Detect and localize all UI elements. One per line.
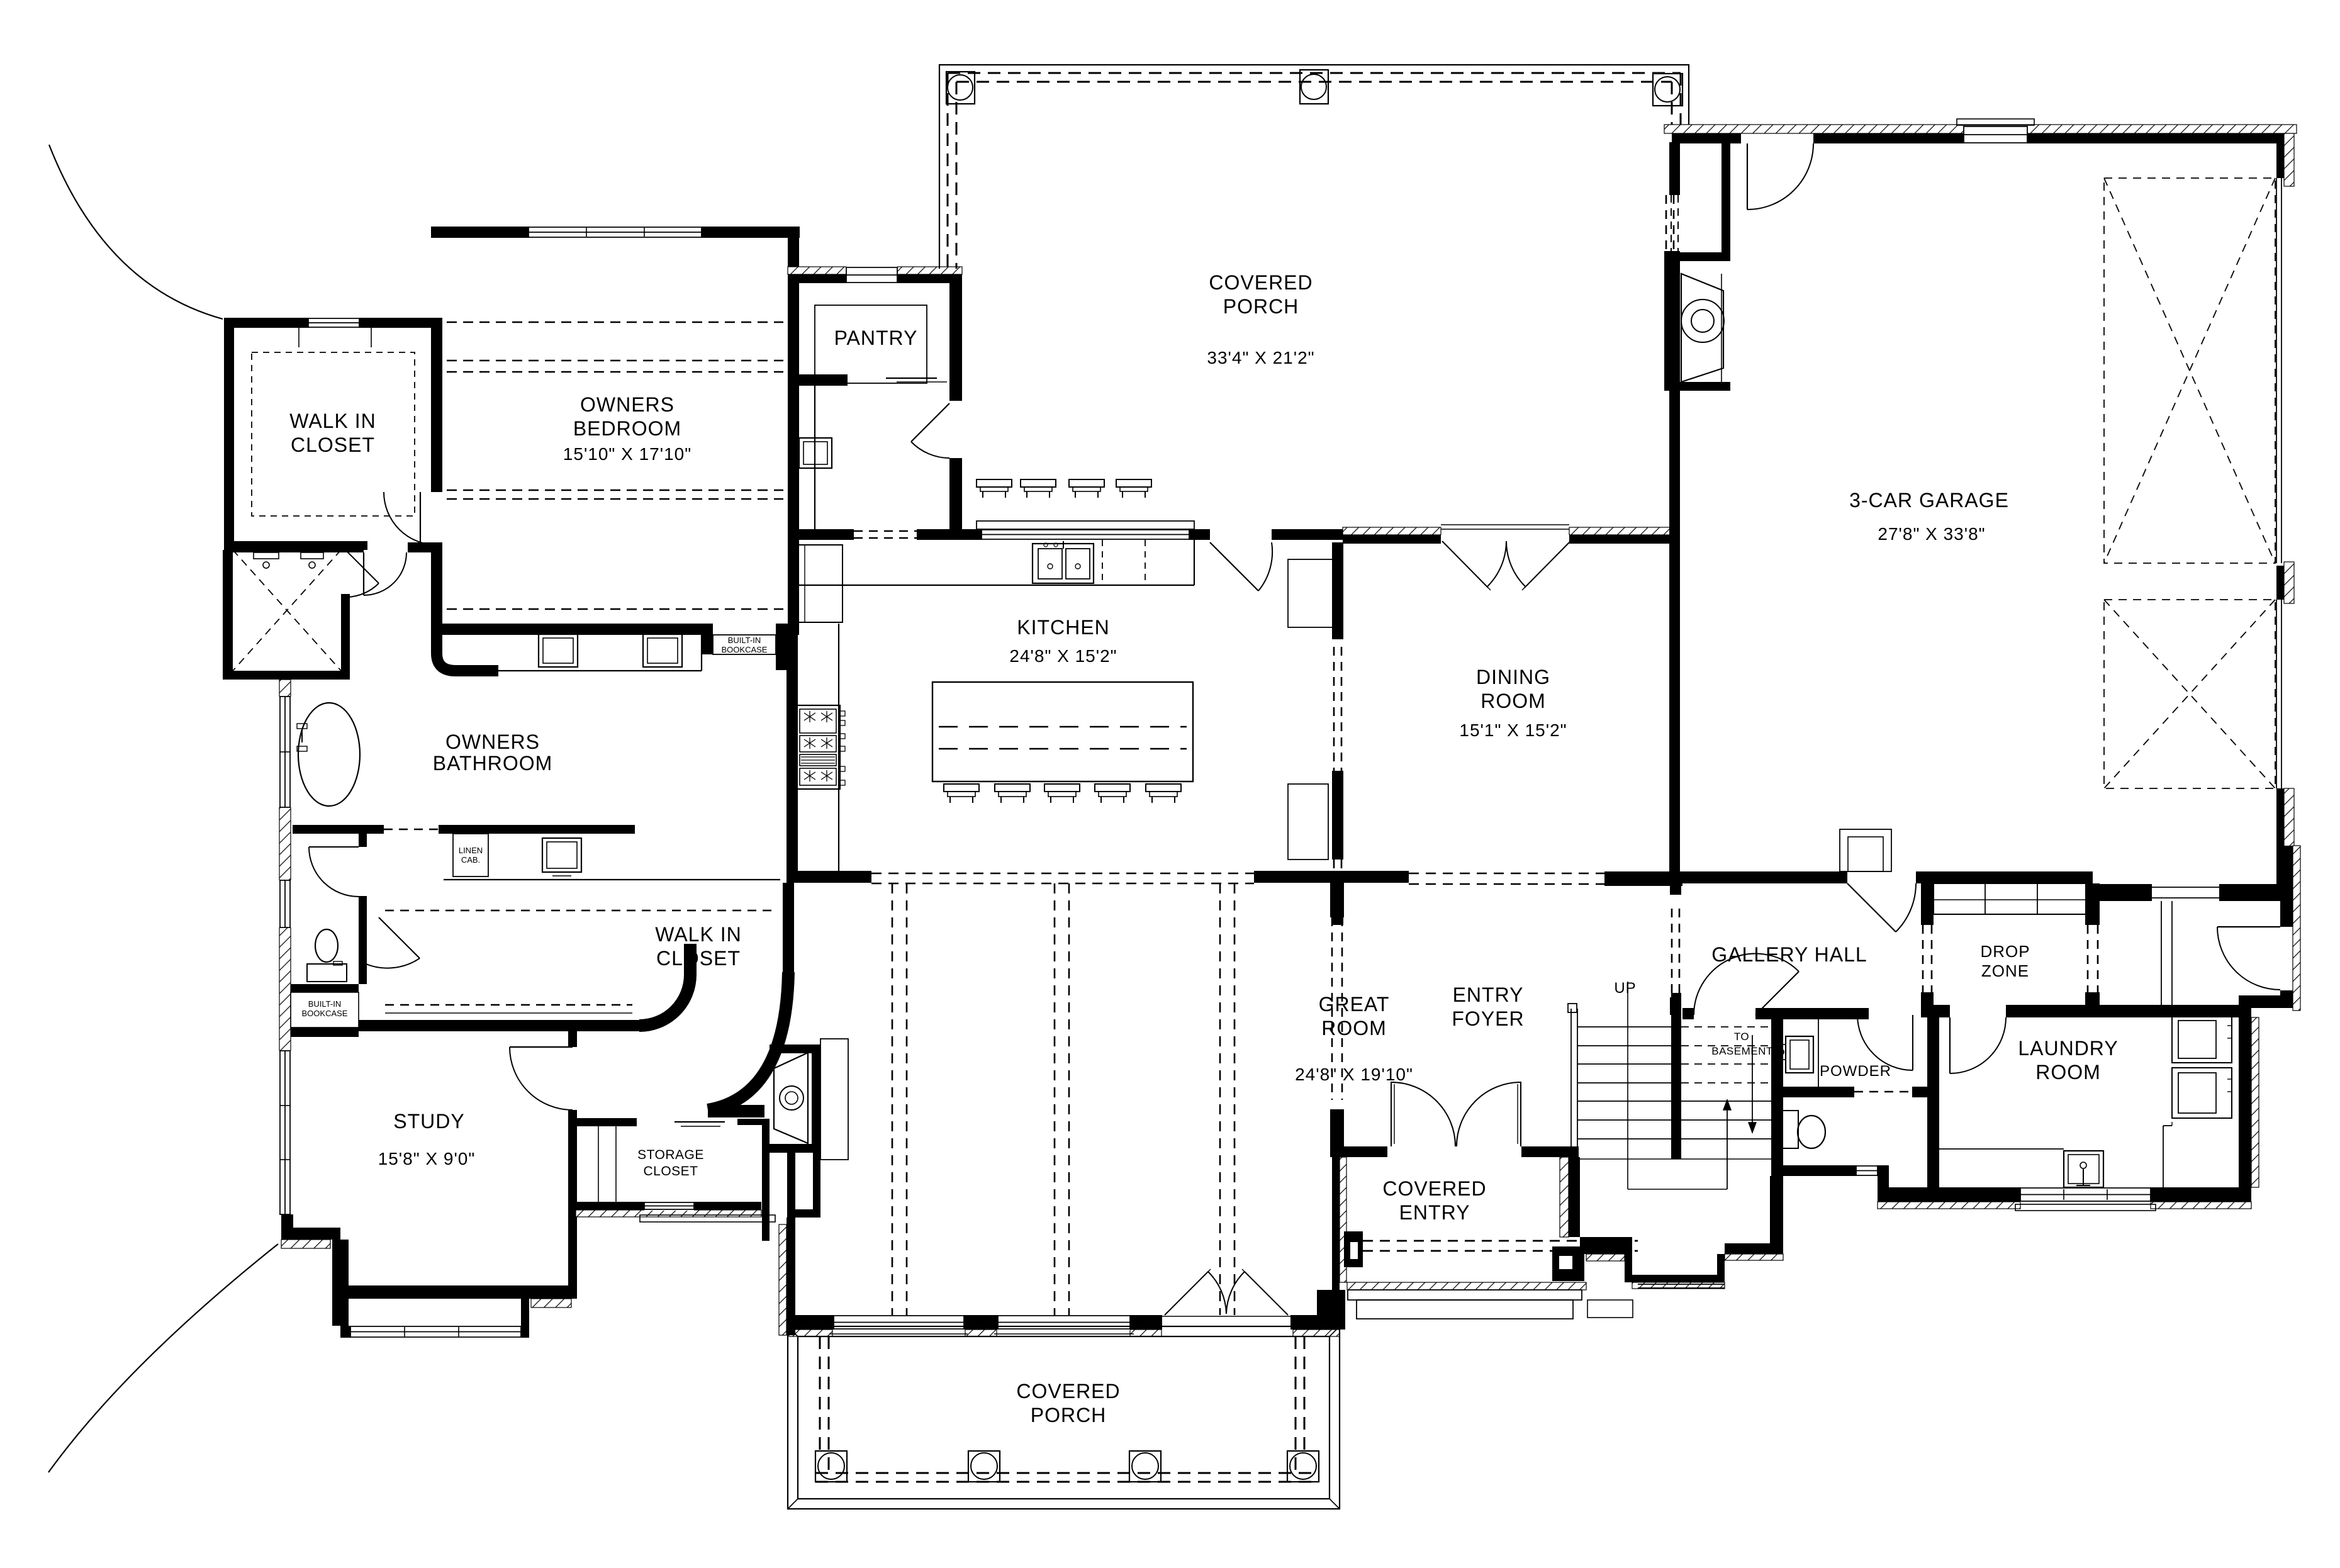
svg-text:CLOSET: CLOSET bbox=[291, 434, 375, 456]
svg-text:BEDROOM: BEDROOM bbox=[573, 417, 681, 440]
svg-text:15'1" X 15'2": 15'1" X 15'2" bbox=[1459, 720, 1567, 740]
svg-text:ENTRY: ENTRY bbox=[1399, 1201, 1470, 1224]
svg-text:LAUNDRY: LAUNDRY bbox=[2018, 1037, 2118, 1060]
svg-text:GALLERY HALL: GALLERY HALL bbox=[1711, 943, 1867, 966]
svg-text:ROOM: ROOM bbox=[1481, 690, 1546, 712]
svg-text:BASEMENT: BASEMENT bbox=[1711, 1045, 1773, 1057]
svg-text:PORCH: PORCH bbox=[1223, 295, 1299, 318]
svg-text:PORCH: PORCH bbox=[1031, 1404, 1107, 1426]
svg-text:ENTRY: ENTRY bbox=[1453, 983, 1524, 1006]
svg-text:BOOKCASE: BOOKCASE bbox=[302, 1009, 348, 1018]
svg-text:24'8" X 19'10": 24'8" X 19'10" bbox=[1295, 1065, 1413, 1084]
svg-text:BUILT-IN: BUILT-IN bbox=[308, 999, 342, 1009]
svg-text:COVERED: COVERED bbox=[1209, 271, 1313, 294]
svg-text:ROOM: ROOM bbox=[1321, 1017, 1387, 1039]
svg-text:ZONE: ZONE bbox=[1981, 961, 2029, 980]
svg-text:LINEN: LINEN bbox=[459, 846, 483, 855]
svg-text:GREAT: GREAT bbox=[1319, 993, 1390, 1016]
svg-text:UP: UP bbox=[1614, 980, 1636, 997]
svg-text:3-CAR GARAGE: 3-CAR GARAGE bbox=[1849, 489, 2009, 512]
svg-text:BUILT-IN: BUILT-IN bbox=[728, 636, 761, 645]
svg-text:POWDER: POWDER bbox=[1820, 1063, 1891, 1080]
svg-text:ROOM: ROOM bbox=[2035, 1061, 2101, 1084]
svg-text:WALK IN: WALK IN bbox=[655, 923, 741, 946]
svg-text:FOYER: FOYER bbox=[1452, 1007, 1524, 1030]
svg-text:CAB.: CAB. bbox=[461, 855, 480, 865]
svg-text:15'8" X 9'0": 15'8" X 9'0" bbox=[378, 1149, 476, 1168]
svg-text:TO: TO bbox=[1734, 1031, 1749, 1043]
svg-text:24'8" X 15'2": 24'8" X 15'2" bbox=[1009, 646, 1117, 666]
svg-text:COVERED: COVERED bbox=[1016, 1380, 1120, 1403]
svg-text:27'8" X 33'8": 27'8" X 33'8" bbox=[1878, 524, 1985, 544]
svg-text:CLOSET: CLOSET bbox=[643, 1164, 698, 1179]
svg-text:DROP: DROP bbox=[1980, 942, 2030, 961]
svg-text:OWNERS: OWNERS bbox=[445, 731, 540, 753]
svg-text:COVERED: COVERED bbox=[1382, 1177, 1486, 1200]
svg-text:CLOSET: CLOSET bbox=[656, 947, 741, 970]
svg-text:15'10" X 17'10": 15'10" X 17'10" bbox=[563, 444, 691, 464]
svg-text:STUDY: STUDY bbox=[393, 1110, 464, 1133]
svg-text:DINING: DINING bbox=[1476, 666, 1550, 688]
svg-text:WALK IN: WALK IN bbox=[289, 410, 376, 432]
svg-text:BATHROOM: BATHROOM bbox=[433, 752, 553, 775]
svg-text:PANTRY: PANTRY bbox=[834, 327, 918, 349]
svg-text:BOOKCASE: BOOKCASE bbox=[722, 645, 768, 654]
svg-text:33'4" X 21'2": 33'4" X 21'2" bbox=[1207, 348, 1314, 367]
svg-text:KITCHEN: KITCHEN bbox=[1017, 616, 1109, 639]
svg-text:OWNERS: OWNERS bbox=[580, 393, 675, 416]
svg-text:STORAGE: STORAGE bbox=[637, 1148, 704, 1162]
